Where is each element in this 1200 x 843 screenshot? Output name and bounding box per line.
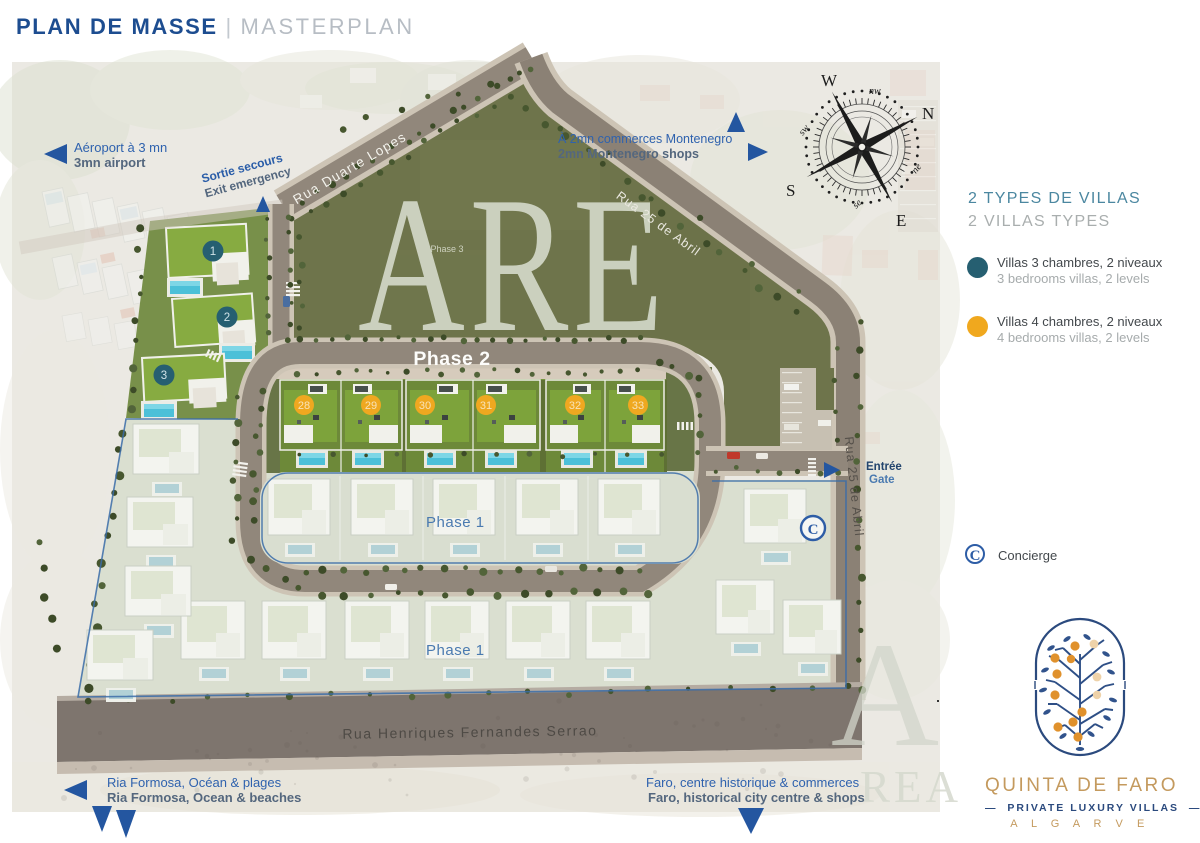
svg-text:3: 3 — [161, 370, 167, 382]
svg-text:C: C — [808, 522, 819, 538]
svg-text:Ria Formosa, Ocean & beaches: Ria Formosa, Ocean & beaches — [107, 790, 301, 805]
svg-text:REA: REA — [860, 762, 962, 812]
svg-text:W: W — [821, 71, 838, 90]
svg-text:33: 33 — [632, 400, 644, 412]
svg-text:E: E — [896, 211, 906, 230]
svg-text:Entrée: Entrée — [866, 461, 902, 473]
svg-text:Gate: Gate — [869, 474, 895, 486]
svg-text:nw: nw — [869, 86, 881, 97]
svg-text:S: S — [786, 181, 795, 200]
svg-text:31: 31 — [480, 400, 492, 412]
svg-text:Phase 2: Phase 2 — [413, 348, 490, 370]
svg-text:Aéroport à 3 mn: Aéroport à 3 mn — [74, 140, 167, 155]
svg-text:28: 28 — [298, 400, 310, 412]
svg-text:1: 1 — [210, 246, 216, 258]
svg-text:N: N — [922, 104, 934, 123]
svg-text:32: 32 — [569, 400, 581, 412]
svg-text:Phase 1: Phase 1 — [426, 642, 485, 659]
svg-text:2: 2 — [224, 312, 230, 324]
svg-text:30: 30 — [419, 400, 431, 412]
svg-text:A: A — [831, 612, 939, 778]
svg-text:À 2mn commerces Montenegro: À 2mn commerces Montenegro — [558, 131, 732, 146]
svg-text:3mn airport: 3mn airport — [74, 155, 146, 170]
svg-text:Faro, historical city centre &: Faro, historical city centre & shops — [648, 790, 865, 805]
svg-text:Faro, centre historique & comm: Faro, centre historique & commerces — [646, 775, 860, 790]
svg-text:Ria Formosa, Océan & plages: Ria Formosa, Océan & plages — [107, 775, 282, 790]
svg-text:Phase 1: Phase 1 — [426, 514, 485, 531]
svg-text:2mn Montenegro shops: 2mn Montenegro shops — [558, 147, 699, 161]
svg-text:29: 29 — [365, 400, 377, 412]
